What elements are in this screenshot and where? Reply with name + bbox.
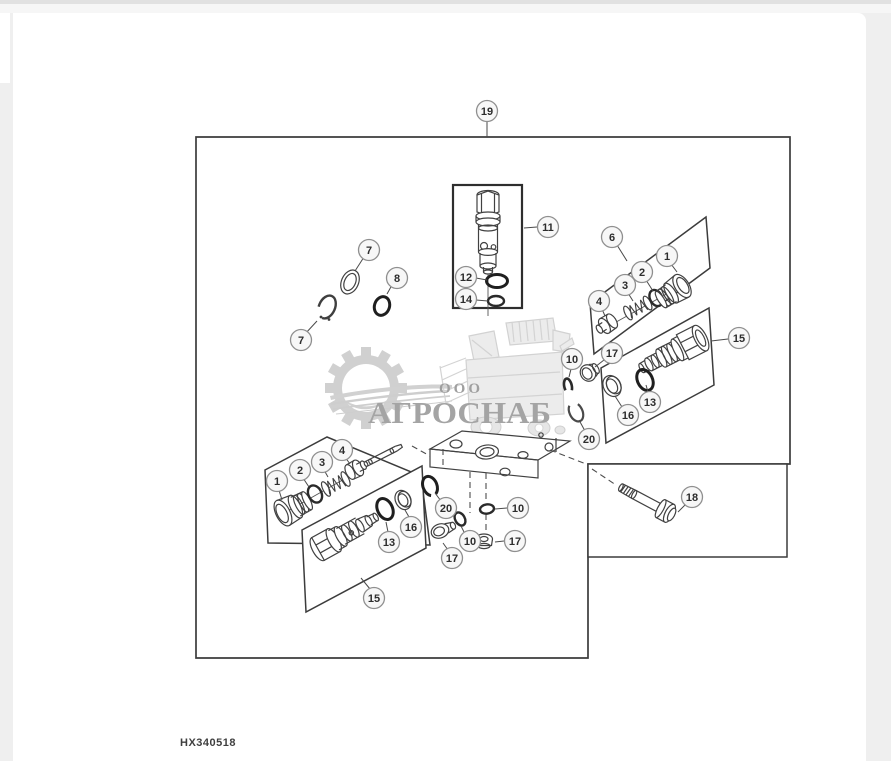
diagram-svg: ООО АГРОСНАБ	[0, 0, 891, 761]
watermark-company-name: АГРОСНАБ	[368, 395, 551, 430]
valve-body	[430, 431, 570, 478]
callout-7-upper: 7	[355, 240, 380, 272]
svg-text:20: 20	[440, 503, 452, 515]
callout-7-lower: 7	[291, 321, 318, 351]
part-washer-7	[337, 267, 363, 297]
svg-text:3: 3	[622, 280, 628, 292]
bolt-detail-box	[588, 464, 787, 557]
svg-text:8: 8	[394, 273, 400, 285]
assembly-dashed-lines	[412, 446, 616, 533]
svg-text:15: 15	[368, 593, 380, 605]
svg-text:2: 2	[297, 465, 303, 477]
svg-text:7: 7	[298, 335, 304, 347]
part-plug-17-center-b	[429, 518, 458, 540]
svg-text:2: 2	[639, 267, 645, 279]
svg-text:19: 19	[481, 106, 493, 118]
svg-text:17: 17	[509, 536, 521, 548]
svg-text:15: 15	[733, 333, 745, 345]
svg-text:13: 13	[383, 537, 395, 549]
svg-text:17: 17	[446, 553, 458, 565]
part-clip-10-right	[563, 378, 574, 394]
svg-text:4: 4	[339, 445, 346, 457]
svg-text:6: 6	[609, 232, 615, 244]
part-snap-ring-7	[315, 293, 339, 321]
callout-6: 6	[602, 227, 628, 262]
svg-text:10: 10	[512, 503, 524, 515]
callout-20-center: 20	[435, 493, 457, 519]
svg-text:18: 18	[686, 492, 698, 504]
drawing-number: HX340518	[180, 737, 236, 749]
svg-text:10: 10	[464, 536, 476, 548]
svg-text:13: 13	[644, 397, 656, 409]
part-snap-ring-20-right	[566, 400, 586, 424]
svg-text:1: 1	[274, 476, 280, 488]
callout-15-left: 15	[361, 578, 385, 609]
callout-20-right: 20	[579, 420, 600, 450]
svg-text:11: 11	[542, 222, 554, 234]
callout-8: 8	[387, 268, 408, 295]
callout-17-center-b: 17	[442, 543, 463, 569]
svg-text:3: 3	[319, 457, 325, 469]
svg-text:1: 1	[664, 251, 670, 263]
svg-text:12: 12	[460, 272, 472, 284]
svg-text:14: 14	[460, 294, 473, 306]
svg-text:20: 20	[583, 434, 595, 446]
svg-text:7: 7	[366, 245, 372, 257]
parts-catalog-page: ООО АГРОСНАБ	[0, 0, 891, 761]
svg-text:4: 4	[596, 296, 603, 308]
callout-19: 19	[477, 101, 498, 138]
callout-10-center-b: 10	[460, 526, 481, 552]
watermark: ООО АГРОСНАБ	[325, 318, 574, 437]
svg-text:17: 17	[606, 348, 618, 360]
callout-17-center-a: 17	[495, 531, 526, 552]
part-oring-8	[372, 295, 392, 318]
svg-text:16: 16	[622, 410, 634, 422]
part-oring-10-center-a	[479, 503, 494, 514]
callout-15-right: 15	[711, 328, 750, 349]
callout-10-center-a: 10	[495, 498, 529, 519]
svg-text:16: 16	[405, 522, 417, 534]
callout-10-right: 10	[562, 349, 583, 378]
svg-text:10: 10	[566, 354, 578, 366]
callout-11: 11	[524, 217, 559, 238]
